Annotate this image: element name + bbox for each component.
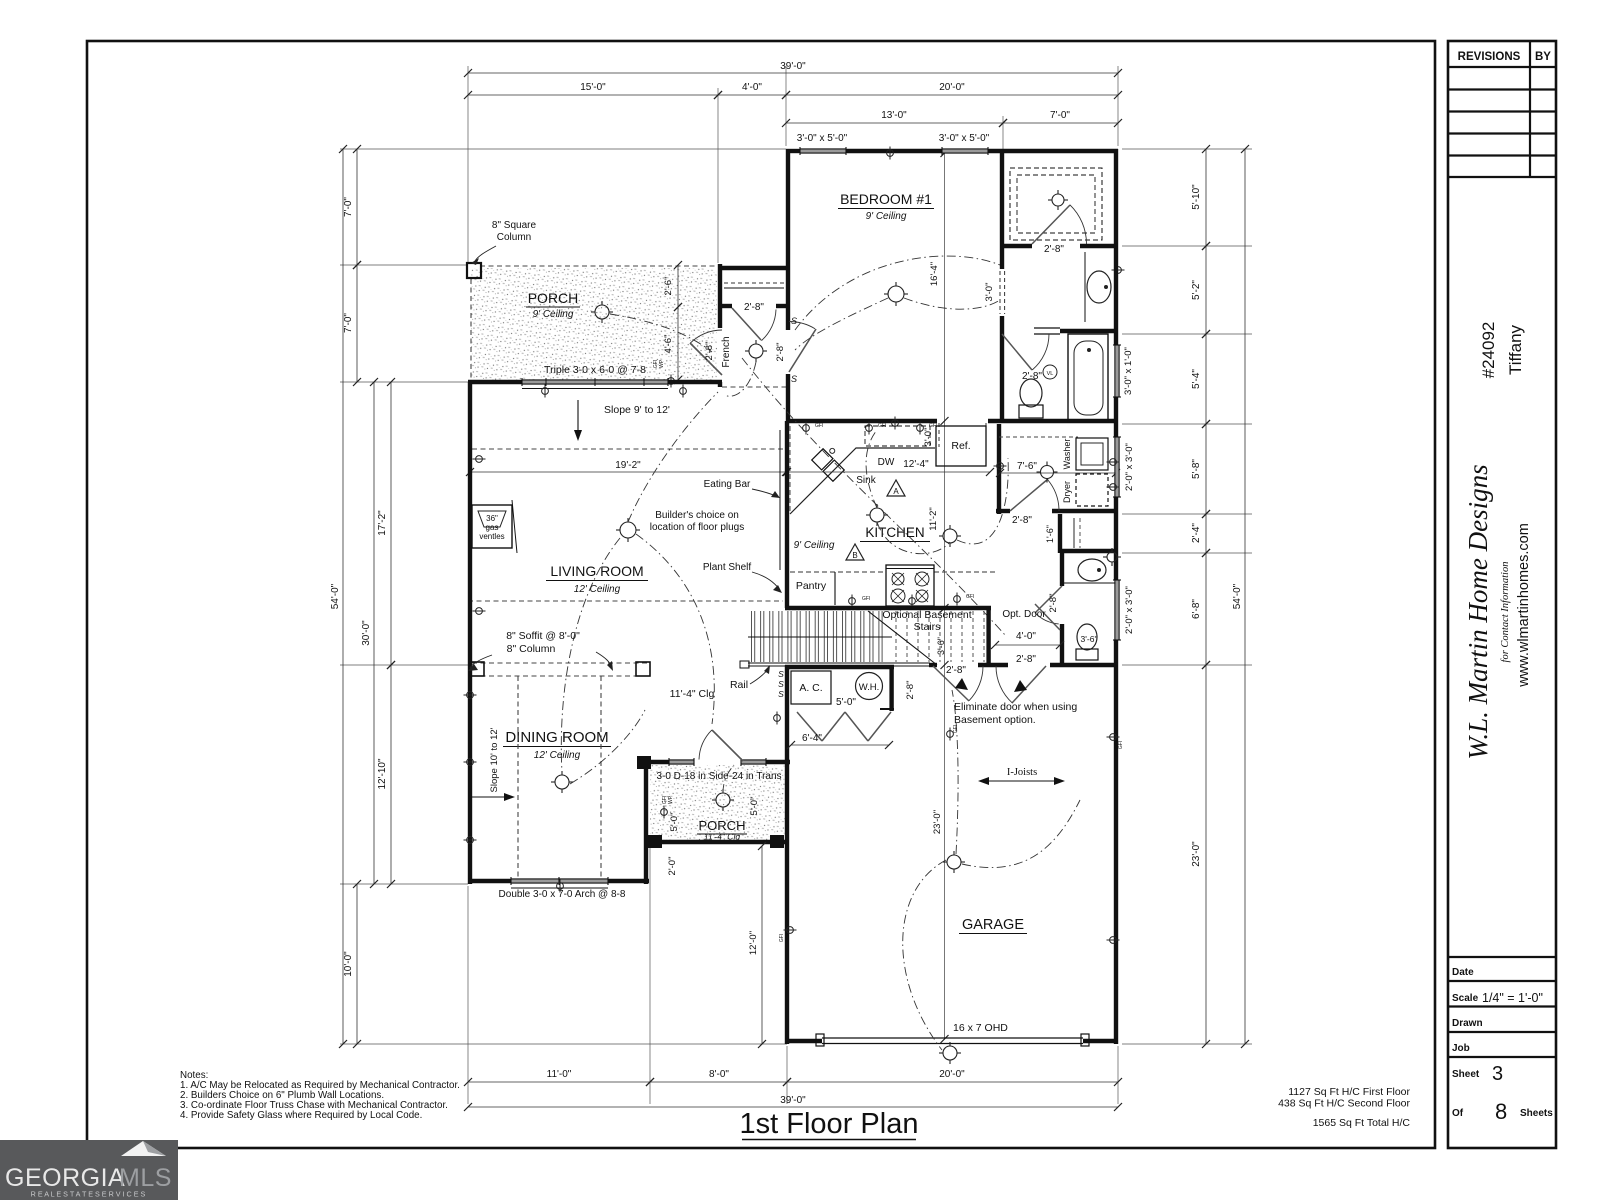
- svg-text:3'-0" x 5'-0": 3'-0" x 5'-0": [797, 133, 848, 144]
- svg-text:12'-0": 12'-0": [748, 931, 759, 955]
- svg-text:Date: Date: [1452, 967, 1474, 978]
- svg-text:S: S: [791, 374, 797, 384]
- svg-text:3: 3: [1492, 1063, 1503, 1085]
- svg-text:39'-0": 39'-0": [780, 61, 806, 72]
- svg-text:3-0 D-18 in Side-24 in Trans: 3-0 D-18 in Side-24 in Trans: [656, 771, 781, 782]
- svg-text:B: B: [852, 551, 857, 560]
- svg-text:Eating Bar: Eating Bar: [704, 479, 751, 490]
- svg-text:DINING ROOM: DINING ROOM: [505, 729, 608, 746]
- svg-text:3'-0": 3'-0": [923, 428, 934, 447]
- svg-text:2'-8": 2'-8": [1044, 244, 1064, 255]
- svg-text:7'-0": 7'-0": [343, 313, 354, 333]
- svg-text:12'-4": 12'-4": [903, 459, 929, 470]
- svg-text:MLS: MLS: [119, 1164, 172, 1192]
- svg-text:A. C.: A. C.: [799, 682, 822, 694]
- svg-text:PORCH: PORCH: [528, 290, 579, 306]
- svg-text:5'-0": 5'-0": [669, 813, 680, 832]
- svg-text:5'-2": 5'-2": [1191, 280, 1202, 300]
- svg-text:30'-0": 30'-0": [361, 620, 372, 646]
- svg-text:gas: gas: [486, 523, 499, 532]
- svg-text:REVISIONS: REVISIONS: [1458, 51, 1521, 63]
- svg-text:Slope 10' to 12': Slope 10' to 12': [489, 727, 500, 792]
- svg-text:Sink: Sink: [856, 475, 876, 486]
- svg-text:4'-0": 4'-0": [1016, 631, 1036, 642]
- svg-text:2'-8": 2'-8": [1048, 594, 1059, 613]
- svg-text:Triple 3-0 x 6-0 @ 7-8: Triple 3-0 x 6-0 @ 7-8: [544, 364, 646, 376]
- svg-text:GFI: GFI: [878, 423, 886, 429]
- svg-text:36": 36": [486, 514, 498, 523]
- svg-text:11'-0": 11'-0": [547, 1069, 572, 1080]
- svg-text:11'-4" Clg: 11'-4" Clg: [670, 688, 715, 700]
- svg-text:17'-2": 17'-2": [377, 510, 388, 536]
- svg-text:#24092: #24092: [1479, 322, 1498, 379]
- svg-text:S: S: [778, 669, 784, 679]
- svg-text:WP: WP: [668, 795, 674, 804]
- svg-text:Pantry: Pantry: [796, 580, 827, 592]
- svg-text:GFI: GFI: [862, 596, 870, 602]
- svg-text:6'-8": 6'-8": [1191, 599, 1202, 619]
- svg-text:20'-0": 20'-0": [939, 82, 965, 93]
- svg-text:12' Ceiling: 12' Ceiling: [574, 584, 621, 595]
- svg-text:39'-0": 39'-0": [780, 1095, 806, 1106]
- svg-text:GFI: GFI: [815, 423, 823, 429]
- svg-text:Basement option.: Basement option.: [954, 714, 1036, 726]
- svg-text:S: S: [791, 316, 797, 326]
- svg-text:2'-8": 2'-8": [946, 665, 966, 676]
- svg-text:Sheet: Sheet: [1452, 1069, 1480, 1080]
- svg-text:W.L. Martin Home Designs: W.L. Martin Home Designs: [1463, 464, 1493, 759]
- svg-text:2'-0" x 3'-0": 2'-0" x 3'-0": [1124, 443, 1135, 491]
- svg-text:A: A: [893, 487, 899, 496]
- svg-text:23'-0": 23'-0": [932, 810, 943, 834]
- svg-text:16'-4": 16'-4": [929, 262, 940, 286]
- svg-text:15'-0": 15'-0": [580, 82, 606, 93]
- svg-text:BEDROOM #1: BEDROOM #1: [840, 191, 932, 207]
- svg-text:Opt. Door: Opt. Door: [1002, 609, 1046, 620]
- svg-text:Plant Shelf: Plant Shelf: [703, 562, 752, 573]
- svg-text:Optional Basement: Optional Basement: [882, 609, 971, 621]
- svg-text:13'-0": 13'-0": [881, 110, 907, 121]
- svg-text:WP: WP: [659, 359, 665, 368]
- svg-text:2'-8": 2'-8": [775, 343, 786, 362]
- svg-text:4'-0": 4'-0": [742, 82, 762, 93]
- svg-text:1127 Sq Ft H/C First Floor: 1127 Sq Ft H/C First Floor: [1288, 1086, 1410, 1098]
- svg-text:10'-0": 10'-0": [343, 951, 354, 977]
- svg-text:Scale: Scale: [1452, 993, 1479, 1004]
- svg-text:GARAGE: GARAGE: [962, 917, 1024, 933]
- svg-text:8" Column: 8" Column: [507, 643, 556, 655]
- svg-text:2'-8": 2'-8": [704, 342, 715, 361]
- svg-text:Sheets: Sheets: [1520, 1108, 1553, 1119]
- svg-text:12'-10": 12'-10": [377, 758, 388, 789]
- svg-text:20'-0": 20'-0": [939, 1069, 965, 1080]
- svg-text:Of: Of: [1452, 1108, 1464, 1119]
- svg-text:5'-0": 5'-0": [836, 697, 856, 708]
- svg-text:for Contact Information: for Contact Information: [1500, 562, 1511, 663]
- svg-text:5'-4": 5'-4": [1191, 369, 1202, 389]
- svg-text:9' Ceiling: 9' Ceiling: [533, 309, 574, 320]
- svg-text:3'-6": 3'-6": [936, 637, 946, 655]
- svg-text:Double 3-0 x 7-0 Arch @ 8-8: Double 3-0 x 7-0 Arch @ 8-8: [499, 889, 626, 900]
- svg-text:3'-6": 3'-6": [1081, 634, 1098, 644]
- svg-text:1'-6": 1'-6": [1045, 525, 1055, 543]
- svg-text:8: 8: [1495, 1099, 1507, 1124]
- svg-text:11'-4" Clg: 11'-4" Clg: [704, 832, 740, 842]
- svg-text:5'-10": 5'-10": [1191, 184, 1202, 210]
- svg-text:54'-0": 54'-0": [1232, 583, 1243, 609]
- svg-text:GFI: GFI: [953, 725, 959, 733]
- svg-text:2'-8": 2'-8": [1022, 371, 1042, 382]
- svg-text:ventles: ventles: [479, 532, 504, 541]
- svg-text:Slope 9' to 12': Slope 9' to 12': [604, 404, 670, 416]
- svg-text:2'-8": 2'-8": [905, 681, 916, 700]
- svg-text:Tiffany: Tiffany: [1506, 324, 1525, 375]
- svg-text:2'-0" x 3'-0": 2'-0" x 3'-0": [1124, 586, 1135, 634]
- svg-text:5'-0": 5'-0": [749, 797, 760, 816]
- svg-text:GEORGIA: GEORGIA: [5, 1164, 125, 1192]
- svg-text:Job: Job: [1452, 1043, 1470, 1054]
- svg-text:2'-0": 2'-0": [667, 857, 678, 876]
- svg-text:Drawn: Drawn: [1452, 1018, 1483, 1029]
- svg-text:8" Soffit @ 8'-0": 8" Soffit @ 8'-0": [506, 630, 580, 642]
- svg-text:GFI: GFI: [966, 594, 974, 600]
- svg-text:R E A L E S T A T E S E R: R E A L E S T A T E S E R V I C E S: [31, 1190, 146, 1199]
- svg-text:www.wlmartinhomes.com: www.wlmartinhomes.com: [1516, 523, 1532, 688]
- svg-text:GFI: GFI: [779, 934, 785, 942]
- svg-text:54'-0": 54'-0": [330, 583, 341, 609]
- svg-text:6'-4": 6'-4": [802, 733, 822, 744]
- svg-text:23'-0": 23'-0": [1191, 841, 1202, 867]
- svg-text:1/4" = 1'-0": 1/4" = 1'-0": [1482, 991, 1543, 1005]
- svg-text:4'-6": 4'-6": [663, 335, 674, 354]
- svg-text:location of floor plugs: location of floor plugs: [650, 522, 745, 533]
- svg-text:2'-4": 2'-4": [1191, 523, 1202, 543]
- svg-text:7'-0": 7'-0": [343, 197, 354, 217]
- svg-text:Ref.: Ref.: [951, 440, 970, 452]
- svg-text:DW: DW: [878, 457, 895, 468]
- svg-text:438 Sq Ft H/C Second Floor: 438 Sq Ft H/C Second Floor: [1278, 1098, 1410, 1110]
- svg-text:8" Square: 8" Square: [492, 220, 537, 231]
- svg-text:S: S: [778, 689, 784, 699]
- svg-text:Washer: Washer: [1062, 439, 1072, 470]
- svg-text:16 x 7 OHD: 16 x 7 OHD: [953, 1022, 1008, 1034]
- svg-text:11'-2": 11'-2": [928, 507, 939, 531]
- svg-text:3'-0" x 5'-0": 3'-0" x 5'-0": [939, 133, 990, 144]
- svg-text:2'-8": 2'-8": [1012, 515, 1032, 526]
- svg-text:KITCHEN: KITCHEN: [865, 525, 924, 540]
- svg-text:VL: VL: [1047, 371, 1054, 377]
- svg-text:Stairs: Stairs: [914, 621, 941, 633]
- svg-text:7'-6": 7'-6": [1017, 461, 1037, 472]
- svg-text:1565 Sq Ft Total H/C: 1565 Sq Ft Total H/C: [1313, 1117, 1411, 1129]
- svg-text:I-Joists: I-Joists: [1007, 767, 1037, 778]
- svg-text:2'-8": 2'-8": [1016, 654, 1036, 665]
- svg-text:Rail: Rail: [730, 679, 748, 691]
- svg-text:Builder's choice on: Builder's choice on: [655, 510, 739, 521]
- svg-text:3'-0" x 1'-0": 3'-0" x 1'-0": [1123, 347, 1134, 395]
- svg-text:4. Provide Safety Glass where: 4. Provide Safety Glass where Required b…: [180, 1110, 422, 1121]
- svg-text:French: French: [721, 336, 732, 367]
- svg-text:GFI: GFI: [1118, 741, 1124, 749]
- svg-text:Column: Column: [497, 232, 531, 243]
- svg-text:LIVING ROOM: LIVING ROOM: [550, 563, 643, 579]
- svg-text:W.H.: W.H.: [859, 682, 880, 693]
- svg-text:9' Ceiling: 9' Ceiling: [794, 540, 835, 551]
- svg-text:1st Floor Plan: 1st Floor Plan: [740, 1108, 919, 1140]
- svg-text:19'-2": 19'-2": [615, 460, 641, 471]
- svg-text:Eliminate door when using: Eliminate door when using: [954, 701, 1077, 713]
- svg-text:3'-0": 3'-0": [984, 283, 995, 302]
- svg-text:2'-8": 2'-8": [744, 302, 764, 313]
- svg-text:8'-0": 8'-0": [709, 1069, 729, 1080]
- svg-text:7'-0": 7'-0": [1050, 110, 1070, 121]
- svg-text:9' Ceiling: 9' Ceiling: [866, 211, 907, 222]
- svg-text:2'-6": 2'-6": [663, 277, 674, 296]
- svg-text:5'-8": 5'-8": [1191, 459, 1202, 479]
- svg-text:Dryer: Dryer: [1062, 481, 1072, 503]
- svg-text:BY: BY: [1535, 51, 1551, 63]
- svg-text:12' Ceiling: 12' Ceiling: [534, 750, 581, 761]
- svg-text:GFI: GFI: [929, 423, 937, 429]
- svg-text:S: S: [778, 679, 784, 689]
